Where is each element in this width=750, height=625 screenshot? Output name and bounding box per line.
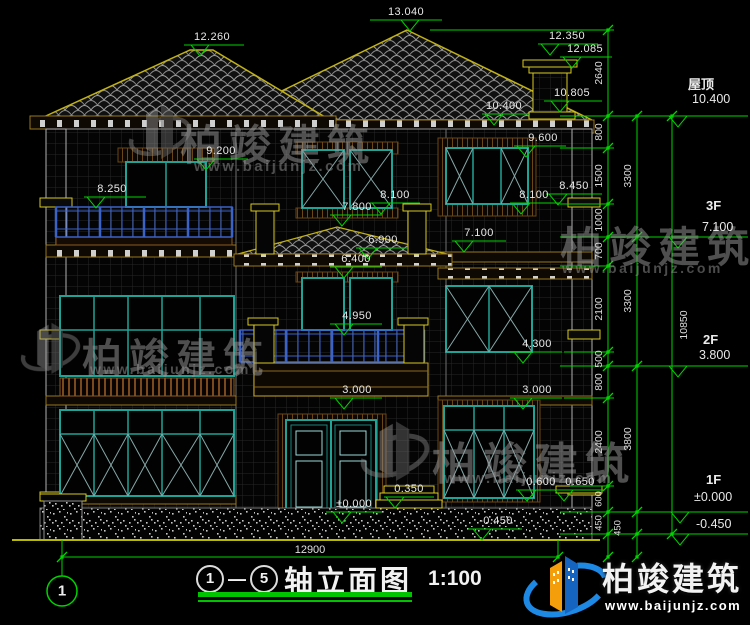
logo-url: www.baijunjz.com: [605, 598, 741, 613]
axis-circle-from: 1: [196, 565, 224, 593]
drawing-svg: [0, 0, 750, 625]
axis-bubble: [47, 576, 77, 606]
logo-brand: 柏竣建筑: [602, 554, 742, 600]
roof: [30, 30, 594, 133]
logo-mark: [520, 556, 612, 624]
title-underline-thick: [198, 592, 412, 597]
cad-elevation-drawing: 柏竣建筑 www.baijunjz.com 柏竣建筑 www.baijunjz.…: [0, 0, 750, 625]
axis-range-dash: —: [228, 569, 246, 590]
title-scale: 1:100: [428, 567, 482, 591]
title-underline-thin: [198, 600, 412, 602]
axis-circle-to: 5: [250, 565, 278, 593]
